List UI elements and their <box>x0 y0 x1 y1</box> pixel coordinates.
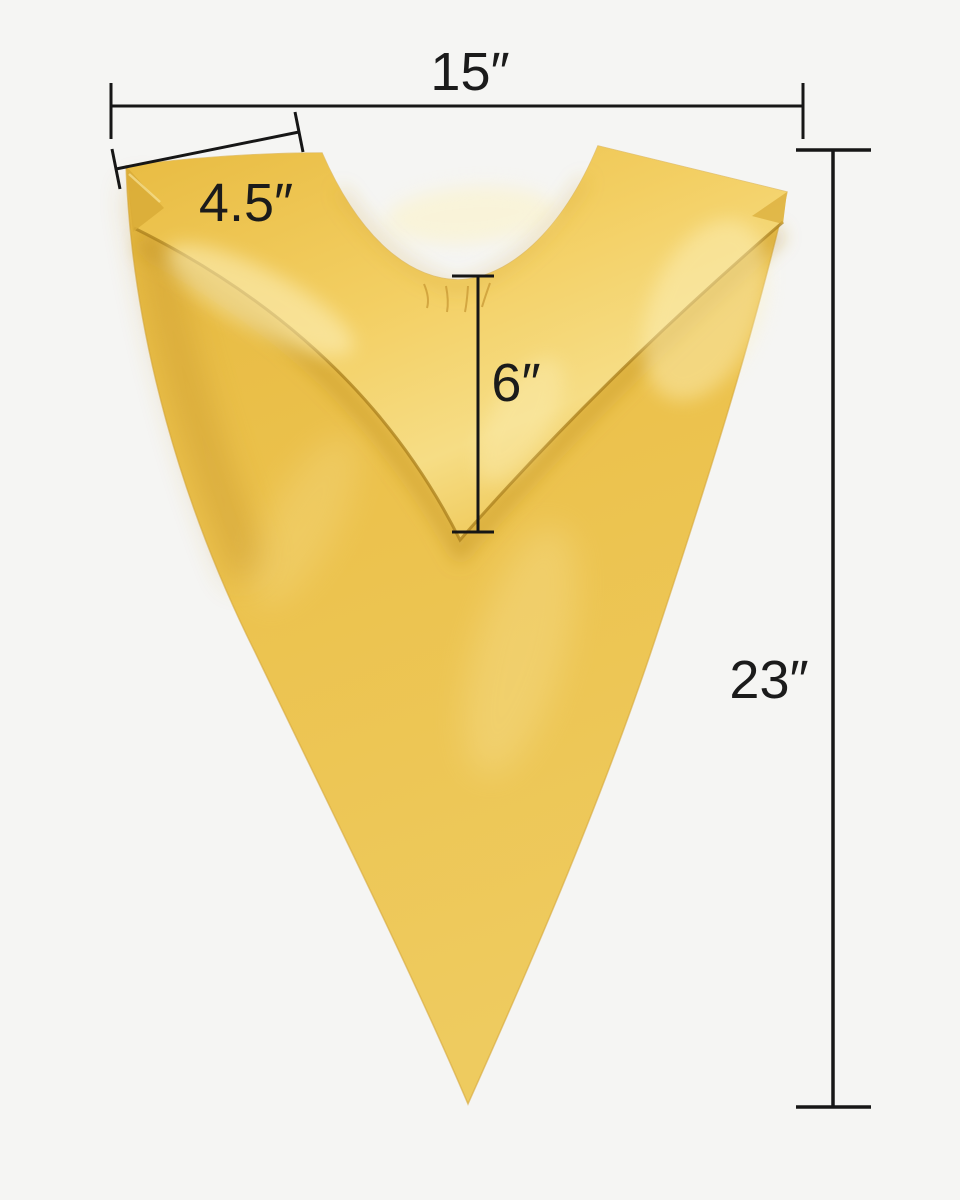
length-label: 23″ <box>729 650 808 710</box>
shoulder-width-label: 4.5″ <box>199 173 293 233</box>
stole-dimension-diagram: 15″ 4.5″ 6″ 23″ <box>0 0 960 1200</box>
product-dimension-image: 15″ 4.5″ 6″ 23″ <box>0 0 960 1200</box>
neck-drop-label: 6″ <box>491 353 540 413</box>
top-width-label: 15″ <box>430 42 509 102</box>
